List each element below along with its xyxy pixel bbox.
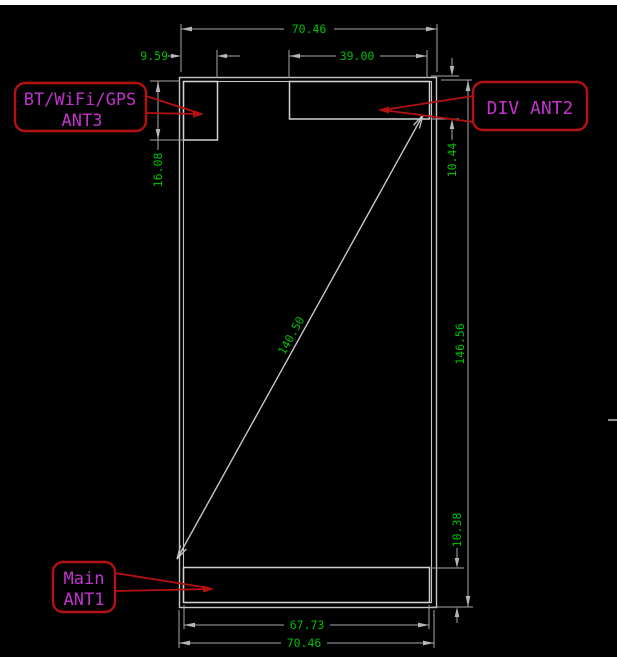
arrowhead [156,129,161,140]
arrowhead [466,80,471,91]
leader-line [116,589,209,591]
leader-arrowhead [193,110,204,117]
antenna-layout-drawing: 70.46 9.59 39.00 16.08 10.44 [0,0,617,657]
dim-value: 16.08 [151,153,165,188]
dim-value: 10.44 [445,143,459,178]
dim-value: 70.46 [292,22,327,36]
callout-ant1: Main ANT1 [53,562,214,612]
arrowhead [416,54,427,59]
leader-line [146,113,200,114]
ant1-region-rect [184,568,430,603]
phone-outline [180,78,437,608]
arrowhead [418,623,429,628]
arrowhead [156,81,161,92]
callout-label: Main [64,569,105,589]
open-arrowhead [177,546,187,560]
callout-ant3: BT/WiFi/GPS ANT3 [15,83,204,131]
leader-line [115,573,209,588]
dim-value: 39.00 [340,49,375,63]
callout-ant2: DIV ANT2 [378,82,587,130]
leader-line [383,110,473,122]
window-top-bar [0,0,617,5]
dim-top-width: 70.46 [181,22,437,72]
dim-ant1-height: 10.38 [431,513,473,623]
arrowhead [217,54,227,59]
open-arrowhead [414,115,424,129]
arrowhead [455,607,460,617]
phone-inner-rect [184,82,432,603]
callout-label: BT/WiFi/GPS [24,90,137,110]
leader-line [383,96,473,110]
dim-value: 146.56 [453,323,467,365]
diagonal-line [177,115,423,559]
arrowhead [450,66,455,76]
dim-value: 9.59 [140,49,168,63]
callout-label: DIV ANT2 [487,98,574,119]
dim-value: 67.73 [290,618,325,632]
arrowhead [181,27,192,32]
arrowhead [179,641,190,646]
cad-drawing-canvas: 70.46 9.59 39.00 16.08 10.44 [0,0,617,657]
arrowhead [289,54,300,59]
leader-arrowhead [378,107,389,114]
arrowhead [426,27,437,32]
callout-label: ANT1 [64,590,105,610]
phone-outer-rect [180,78,437,608]
dim-value: 10.38 [450,513,464,548]
arrowhead [455,558,460,568]
callout-label: ANT3 [62,111,103,131]
arrowhead [423,641,434,646]
dim-ant2-width: 39.00 [289,49,427,78]
dim-ant1-width: 67.73 [184,605,429,632]
dim-ant3-width: 9.59 [140,49,240,78]
leader-arrowhead [203,586,214,593]
dim-value: 140.50 [275,314,307,357]
dim-diagonal: 140.50 [177,115,423,559]
arrowhead [184,623,195,628]
dim-value: 70.46 [287,636,322,650]
arrowhead [466,596,471,607]
leader-line [146,96,200,114]
arrowhead [450,119,455,129]
arrowhead [171,54,181,59]
